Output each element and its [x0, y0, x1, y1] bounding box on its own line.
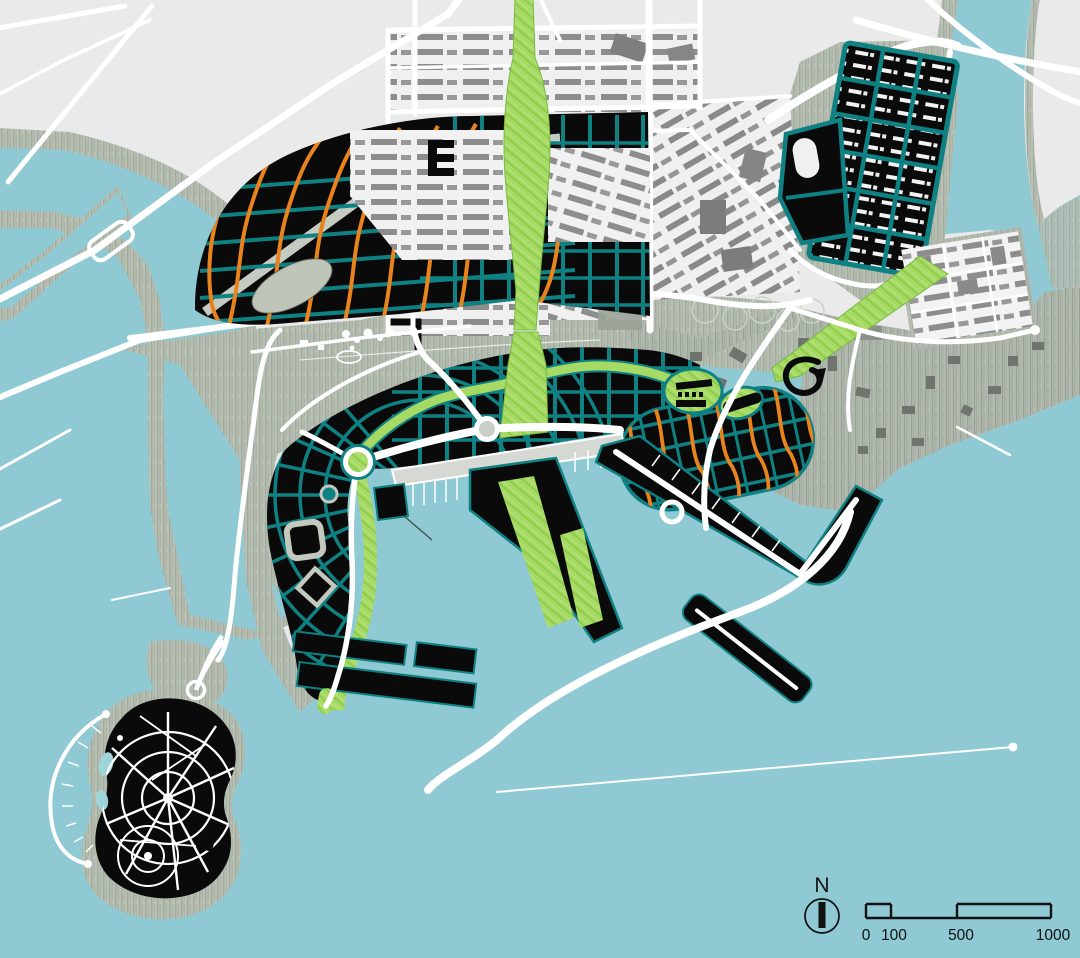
scale-label-0: 0 [862, 927, 871, 944]
embedded-city-patches [350, 130, 650, 260]
north-label: N [814, 874, 829, 897]
courtyard-building [428, 140, 454, 176]
masterplan-map: N 0 100 500 1000 [0, 0, 1080, 958]
pier-small [374, 484, 408, 520]
map-canvas: N 0 100 500 1000 [0, 0, 1080, 958]
scale-label-100: 100 [881, 927, 907, 944]
scale-label-1000: 1000 [1036, 927, 1071, 944]
scale-label-500: 500 [948, 927, 974, 944]
